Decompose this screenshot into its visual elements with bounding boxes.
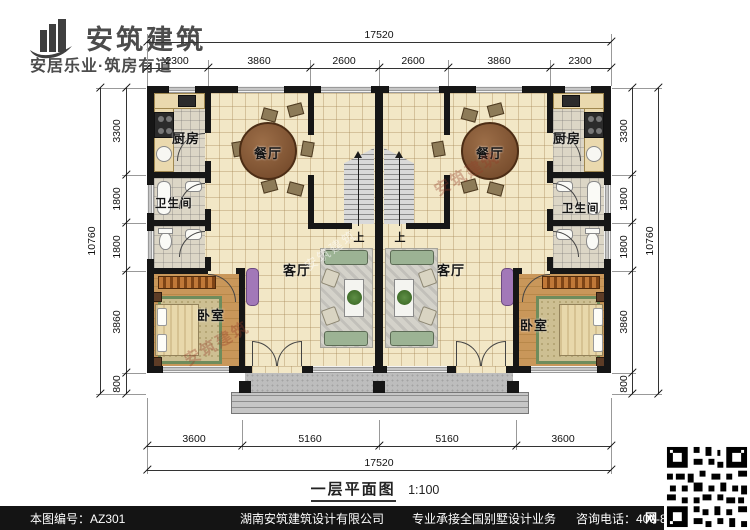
dim-bottom-4: 3600 [551, 433, 574, 445]
dim-top-2: 3860 [247, 55, 270, 67]
window-bath1-right [604, 184, 611, 214]
room-label-kitchen-right: 厨房 [553, 128, 581, 147]
footer-bar: 本图编号：AZ301 湖南安筑建筑设计有限公司 专业承接全国别墅设计业务 咨询电… [0, 506, 750, 530]
decor-left [246, 268, 259, 306]
party-wall [375, 88, 383, 373]
dim-bottom-2: 5160 [298, 433, 321, 445]
window-dining-right [475, 86, 523, 93]
dim-left-total: 10760 [86, 226, 98, 255]
window-bath1-left [147, 184, 154, 214]
stair-up-label-left: 上 [354, 229, 365, 245]
caption-title: 一层平面图 [311, 481, 396, 502]
plant-left [347, 290, 362, 305]
room-label-bath-left: 卫生间 [155, 195, 193, 211]
entry-steps [231, 392, 529, 414]
dim-top-3: 2600 [332, 55, 355, 67]
porch-column-right [507, 381, 519, 393]
kitchen-sink-left [156, 146, 172, 162]
outer-wall-top [147, 86, 611, 93]
window-dining-left [237, 86, 285, 93]
dim-left-1: 3300 [111, 119, 123, 142]
footer-slogan: 专业承接全国别墅设计业务 [412, 510, 556, 527]
toilet-bath2-left [159, 232, 172, 250]
footer-code: 本图编号：AZ301 [30, 510, 125, 527]
window-stair-left [320, 86, 372, 93]
room-label-living-right: 客厅 [437, 260, 465, 279]
stove-right [584, 112, 604, 138]
kitchen-sink-right [586, 146, 602, 162]
dim-bottom-total: 17520 [364, 457, 393, 469]
window-bedroom-right [530, 366, 598, 373]
dim-right-total: 10760 [644, 226, 656, 255]
room-label-kitchen-left: 厨房 [172, 128, 200, 147]
dim-right-3: 1800 [618, 235, 630, 258]
dim-line-left-total [100, 88, 101, 394]
room-label-dining-left: 餐厅 [254, 143, 282, 162]
room-label-bedroom-right: 卧室 [520, 315, 548, 334]
dim-line-right-segments [632, 88, 633, 394]
dim-right-4: 3860 [618, 310, 630, 333]
dim-top-1: 2300 [165, 55, 188, 67]
window-bedroom-left [162, 366, 230, 373]
room-label-dining-right: 餐厅 [476, 143, 504, 162]
dim-line-right-total [658, 88, 659, 394]
floor-plan-page: 安筑建筑 安居乐业·筑房有道 17520 2300 3860 2600 2600… [0, 0, 750, 530]
stair-up-label-right: 上 [395, 229, 406, 245]
dim-line-bottom-total [147, 470, 611, 471]
appliance-left [178, 95, 196, 107]
footer-company: 湖南安筑建筑设计有限公司 [240, 510, 384, 527]
window-living-left [312, 366, 374, 373]
dim-right-1: 3300 [618, 119, 630, 142]
dim-top-4: 2600 [401, 55, 424, 67]
dim-line-left-segments [126, 88, 127, 394]
qr-code [664, 444, 750, 530]
dim-bottom-3: 5160 [435, 433, 458, 445]
plant-right [397, 290, 412, 305]
dim-left-2: 1800 [111, 187, 123, 210]
room-label-living-left: 客厅 [283, 260, 311, 279]
dim-right-2: 1800 [618, 187, 630, 210]
footer-web-char: 网 [645, 509, 657, 526]
caption-scale: 1:100 [408, 483, 439, 497]
wardrobe-right [542, 276, 600, 289]
dim-top-5: 3860 [487, 55, 510, 67]
dim-bottom-1: 3600 [182, 433, 205, 445]
dim-top-total: 17520 [364, 29, 393, 41]
dim-right-5: 800 [618, 375, 630, 393]
appliance-right [562, 95, 580, 107]
window-stair-right [388, 86, 440, 93]
room-label-bedroom-left: 卧室 [197, 305, 225, 324]
window-living-right [386, 366, 448, 373]
window-kitchen-right [564, 86, 592, 93]
porch-column-left [239, 381, 251, 393]
window-bath2-right [604, 230, 611, 260]
dim-left-4: 3860 [111, 310, 123, 333]
room-label-bath-right: 卫生间 [562, 200, 600, 216]
caption: 一层平面图 1:100 [0, 478, 750, 499]
window-bath2-left [147, 230, 154, 260]
stove-left [154, 112, 174, 138]
porch-column-center [373, 381, 385, 393]
dim-left-5: 800 [111, 375, 123, 393]
dim-top-6: 2300 [568, 55, 591, 67]
dim-left-3: 1800 [111, 235, 123, 258]
toilet-bath2-right [586, 232, 599, 250]
window-kitchen-left [168, 86, 196, 93]
dim-line-top-total [147, 42, 611, 43]
